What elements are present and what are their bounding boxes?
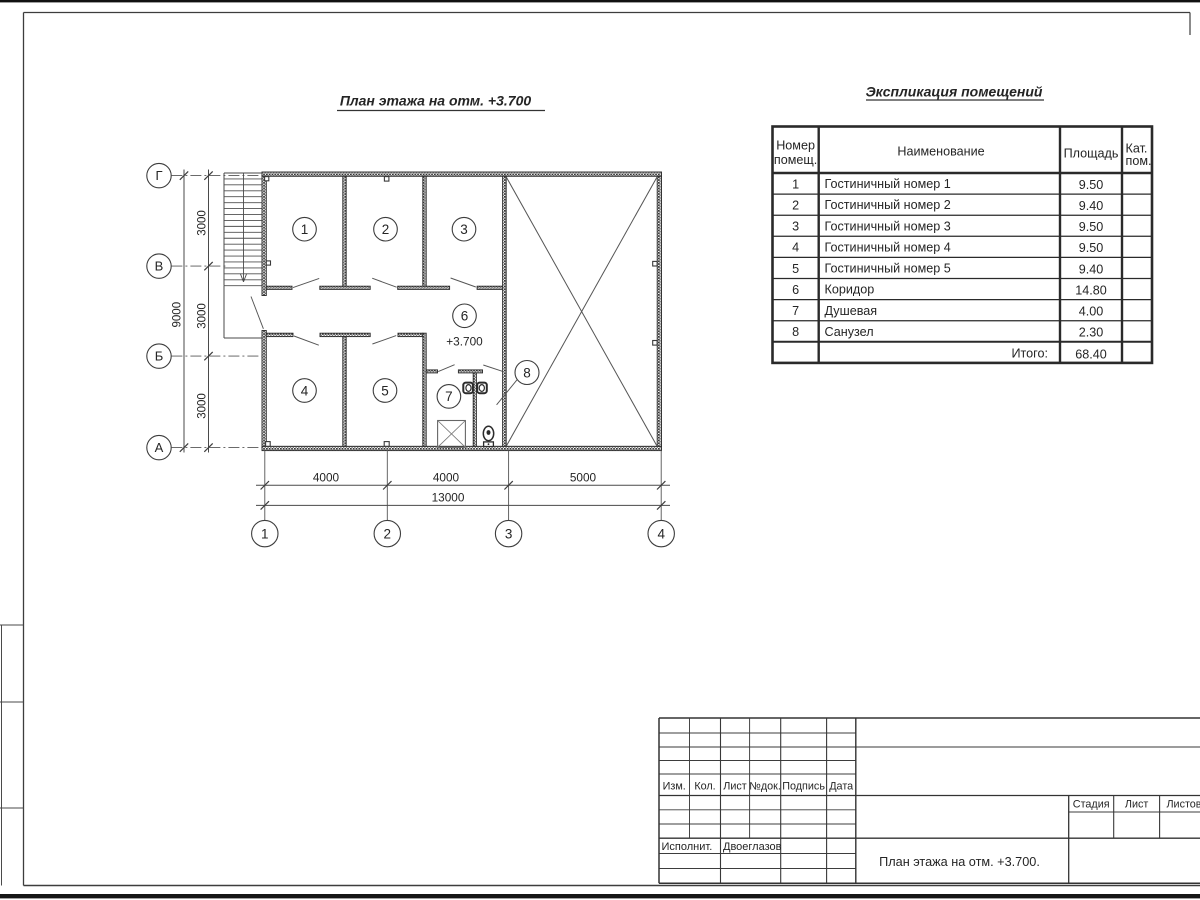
svg-text:68.40: 68.40 — [1075, 347, 1107, 361]
svg-text:6: 6 — [461, 309, 469, 324]
svg-text:3000: 3000 — [197, 210, 209, 236]
svg-text:3000: 3000 — [197, 303, 209, 329]
svg-text:8: 8 — [523, 365, 531, 380]
svg-text:Подпись: Подпись — [782, 781, 825, 793]
svg-text:4000: 4000 — [433, 471, 460, 485]
svg-text:3: 3 — [792, 220, 799, 234]
svg-text:5: 5 — [792, 262, 799, 276]
svg-text:Итого:: Итого: — [1011, 346, 1048, 360]
svg-text:13000: 13000 — [432, 491, 465, 505]
svg-text:Площадь: Площадь — [1064, 147, 1119, 161]
svg-text:2: 2 — [382, 222, 390, 237]
svg-text:9.40: 9.40 — [1079, 262, 1104, 276]
svg-text:5000: 5000 — [570, 471, 597, 485]
svg-text:4: 4 — [792, 241, 799, 255]
svg-text:+3.700: +3.700 — [446, 335, 483, 349]
svg-text:3: 3 — [505, 526, 513, 541]
svg-text:Гостиничный номер 3: Гостиничный номер 3 — [825, 219, 951, 233]
svg-text:Гостиничный номер 1: Гостиничный номер 1 — [825, 177, 951, 191]
svg-text:В: В — [155, 259, 164, 274]
svg-text:Дата: Дата — [829, 781, 853, 793]
svg-text:2: 2 — [792, 198, 799, 212]
svg-text:4000: 4000 — [313, 471, 340, 485]
svg-text:7: 7 — [445, 389, 453, 404]
svg-text:14.80: 14.80 — [1075, 283, 1107, 297]
svg-text:Изм.: Изм. — [663, 781, 686, 793]
svg-text:1: 1 — [261, 526, 269, 541]
svg-text:План этажа на отм. +3.700.: План этажа на отм. +3.700. — [879, 855, 1040, 869]
svg-text:Санузел: Санузел — [825, 325, 874, 339]
svg-text:№док.: №док. — [749, 781, 781, 793]
svg-text:9.40: 9.40 — [1079, 199, 1104, 213]
svg-text:План этажа на отм. +3.700: План этажа на отм. +3.700 — [340, 93, 532, 109]
svg-text:Б: Б — [155, 349, 164, 364]
svg-text:Номер: Номер — [776, 139, 815, 153]
svg-text:Г: Г — [155, 168, 162, 183]
svg-text:Лист: Лист — [1125, 799, 1149, 811]
svg-text:4.00: 4.00 — [1079, 305, 1104, 319]
svg-text:Двоеглазов: Двоеглазов — [723, 841, 782, 853]
svg-text:Гостиничный номер 5: Гостиничный номер 5 — [825, 262, 951, 276]
svg-text:3000: 3000 — [197, 393, 209, 419]
svg-text:Экспликация помещений: Экспликация помещений — [866, 84, 1043, 100]
svg-text:Душевая: Душевая — [825, 304, 878, 318]
svg-text:5: 5 — [381, 383, 389, 398]
svg-text:Стадия: Стадия — [1073, 799, 1110, 811]
svg-text:4: 4 — [301, 383, 309, 398]
svg-text:Наименование: Наименование — [897, 145, 984, 159]
svg-text:7: 7 — [792, 304, 799, 318]
svg-text:9.50: 9.50 — [1079, 178, 1104, 192]
svg-text:2.30: 2.30 — [1079, 326, 1104, 340]
svg-text:Кол.: Кол. — [694, 781, 715, 793]
svg-text:Гостиничный номер 2: Гостиничный номер 2 — [825, 198, 951, 212]
svg-text:помещ.: помещ. — [774, 153, 817, 167]
svg-text:Коридор: Коридор — [825, 283, 875, 297]
svg-text:пом.: пом. — [1126, 154, 1152, 168]
svg-text:9000: 9000 — [172, 302, 184, 328]
svg-text:Исполнит.: Исполнит. — [662, 841, 713, 853]
svg-text:9.50: 9.50 — [1079, 220, 1104, 234]
svg-text:8: 8 — [792, 325, 799, 339]
svg-text:6: 6 — [792, 283, 799, 297]
svg-text:Лист: Лист — [723, 781, 747, 793]
svg-text:1: 1 — [792, 177, 799, 191]
svg-text:3: 3 — [460, 222, 468, 237]
svg-text:4: 4 — [657, 526, 665, 541]
svg-text:Гостиничный номер 4: Гостиничный номер 4 — [825, 240, 951, 254]
svg-text:2: 2 — [384, 526, 392, 541]
svg-text:Листов: Листов — [1166, 799, 1200, 811]
svg-text:А: А — [155, 440, 164, 455]
svg-text:9.50: 9.50 — [1079, 241, 1104, 255]
svg-text:1: 1 — [301, 222, 309, 237]
